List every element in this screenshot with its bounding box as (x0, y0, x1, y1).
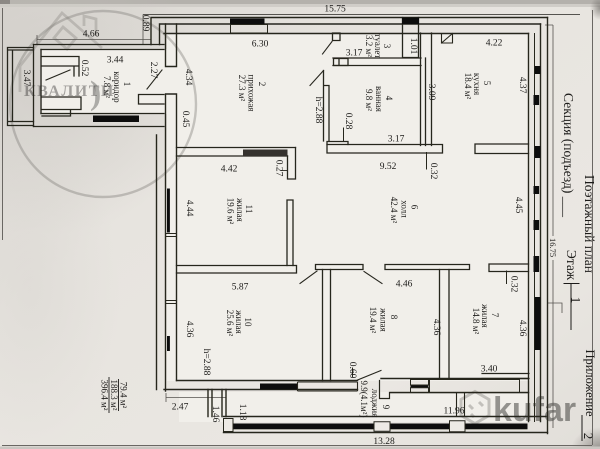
svg-text:19.4 м²: 19.4 м² (368, 307, 378, 334)
svg-text:жилая: жилая (379, 307, 389, 332)
svg-text:1.01: 1.01 (408, 38, 418, 55)
svg-text:1.46: 1.46 (210, 406, 220, 423)
svg-text:27.3 м²: 27.3 м² (237, 75, 247, 102)
svg-text:2.47: 2.47 (172, 403, 189, 413)
svg-text:3.2 м²: 3.2 м² (364, 35, 374, 57)
svg-text:42.4 м²: 42.4 м² (389, 197, 399, 224)
svg-text:5.87: 5.87 (232, 283, 249, 293)
svg-text:14.8 м²: 14.8 м² (471, 308, 481, 335)
svg-text:0.32: 0.32 (428, 163, 438, 180)
svg-text:Этаж: Этаж (564, 250, 579, 281)
svg-text:ванная: ванная (374, 86, 384, 112)
svg-text:1.18: 1.18 (237, 404, 247, 421)
svg-text:6.30: 6.30 (252, 40, 269, 50)
svg-text:жилая: жилая (235, 197, 245, 222)
svg-text:Приложение: Приложение (583, 349, 597, 417)
svg-text:9.52: 9.52 (380, 162, 397, 172)
svg-text:Поэтажный план: Поэтажный план (582, 175, 597, 273)
svg-text:16.75: 16.75 (548, 238, 558, 257)
svg-text:15.75: 15.75 (324, 5, 346, 15)
svg-text:2.27: 2.27 (148, 62, 158, 79)
svg-text:h=2.88: h=2.88 (313, 97, 323, 124)
svg-text:холл: холл (400, 200, 410, 218)
svg-text:2: 2 (581, 433, 596, 440)
svg-text:188.3 м²: 188.3 м² (109, 380, 119, 411)
svg-text:1: 1 (122, 82, 132, 87)
svg-text:0.89: 0.89 (140, 15, 150, 32)
svg-text:4.36: 4.36 (517, 320, 527, 337)
svg-text:7.8 м²: 7.8 м² (102, 76, 112, 98)
svg-text:0.28: 0.28 (343, 113, 353, 130)
svg-text:8: 8 (389, 315, 399, 320)
svg-text:4.42: 4.42 (221, 165, 238, 175)
svg-text:0.52: 0.52 (79, 60, 89, 77)
svg-text:4.36: 4.36 (184, 321, 194, 338)
svg-text:3.09: 3.09 (426, 84, 436, 101)
svg-text:4.34: 4.34 (183, 69, 193, 86)
svg-text:4: 4 (384, 96, 394, 101)
svg-text:3.44: 3.44 (107, 56, 124, 66)
svg-text:11.96: 11.96 (443, 407, 464, 417)
svg-text:3.17: 3.17 (346, 49, 363, 59)
svg-text:7: 7 (490, 313, 500, 318)
svg-text:9.8 м²: 9.8 м² (364, 89, 374, 111)
svg-text:коридор: коридор (112, 71, 122, 103)
svg-text:4.46: 4.46 (396, 280, 413, 290)
svg-text:19.6 м²: 19.6 м² (226, 198, 236, 225)
svg-text:25.6 м²: 25.6 м² (225, 310, 235, 337)
svg-text:3.47: 3.47 (21, 70, 31, 87)
svg-text:9: 9 (381, 405, 391, 410)
svg-text:5: 5 (482, 81, 492, 86)
svg-text:3.40: 3.40 (481, 365, 498, 375)
svg-text:0.32: 0.32 (509, 276, 519, 293)
svg-text:18.4 м²: 18.4 м² (463, 73, 473, 100)
svg-text:4.36: 4.36 (431, 319, 441, 336)
svg-text:396.4 м²: 396.4 м² (100, 380, 110, 411)
svg-text:h=2.88: h=2.88 (201, 349, 211, 376)
svg-text:9.9(4.1м²): 9.9(4.1м²) (359, 381, 369, 418)
svg-text:13.28: 13.28 (373, 437, 395, 447)
svg-text:0.45: 0.45 (180, 111, 190, 128)
svg-text:2: 2 (257, 82, 267, 87)
svg-text:79.4 м²: 79.4 м² (119, 382, 129, 409)
svg-text:4.22: 4.22 (486, 39, 503, 49)
svg-text:лоджия: лоджия (370, 389, 380, 418)
svg-text:3.17: 3.17 (388, 135, 405, 145)
svg-text:4.66: 4.66 (83, 30, 100, 40)
svg-text:): ) (90, 75, 101, 112)
svg-text:6: 6 (410, 205, 420, 210)
svg-text:4.44: 4.44 (184, 200, 194, 217)
svg-text:прихожая: прихожая (247, 75, 257, 112)
svg-text:0.27: 0.27 (274, 160, 284, 177)
svg-text:4.37: 4.37 (517, 77, 527, 94)
svg-text:0.60: 0.60 (347, 362, 357, 379)
svg-text:Секция (подъезд) ___: Секция (подъезд) ___ (561, 93, 576, 217)
svg-text:4.45: 4.45 (513, 197, 523, 214)
